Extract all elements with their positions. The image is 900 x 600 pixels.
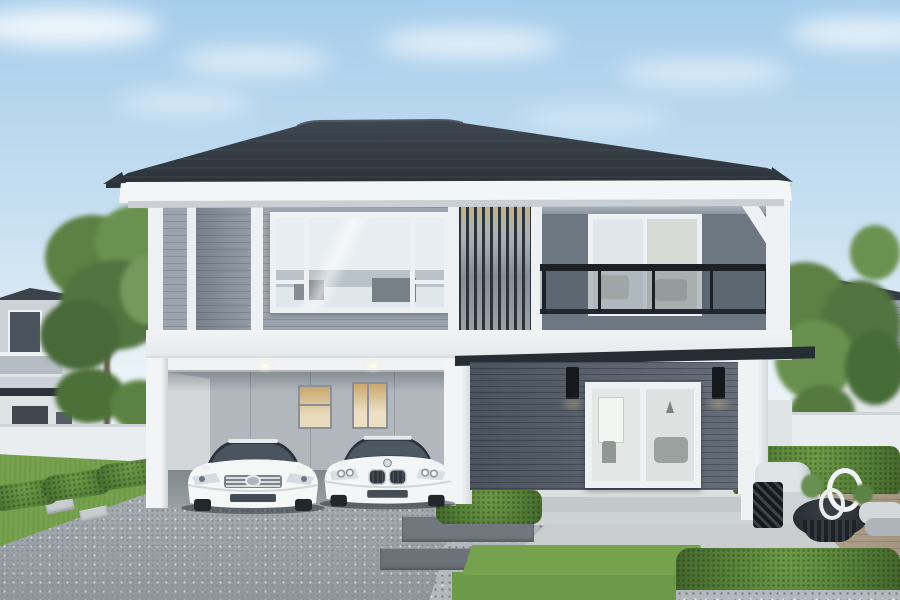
window-transom [276,280,306,284]
window-transom [414,280,444,284]
carport-downlight [262,364,268,368]
roof [0,0,900,240]
floor-cushion [865,518,900,536]
foreground-hedge [676,548,900,594]
decor-ring [819,488,845,520]
patio-furniture [735,440,900,560]
balcony-railing [540,264,772,316]
house-render-scene [0,0,900,600]
foreground-gravel-strip [676,590,900,600]
sconce-glow [704,396,734,412]
entrance-door [585,382,701,488]
wall-sconce [566,367,579,399]
wall-sconce [712,367,725,399]
sconce-glow [558,396,588,412]
coffee-table-base [803,520,857,542]
lattice-side-table [753,482,783,528]
potted-plant [853,484,873,504]
ground-column [146,358,168,508]
car-toyota-sedan [178,415,328,515]
potted-plant [801,474,823,498]
carport-downlight [370,364,376,368]
car-bmw-sedan [315,412,460,512]
